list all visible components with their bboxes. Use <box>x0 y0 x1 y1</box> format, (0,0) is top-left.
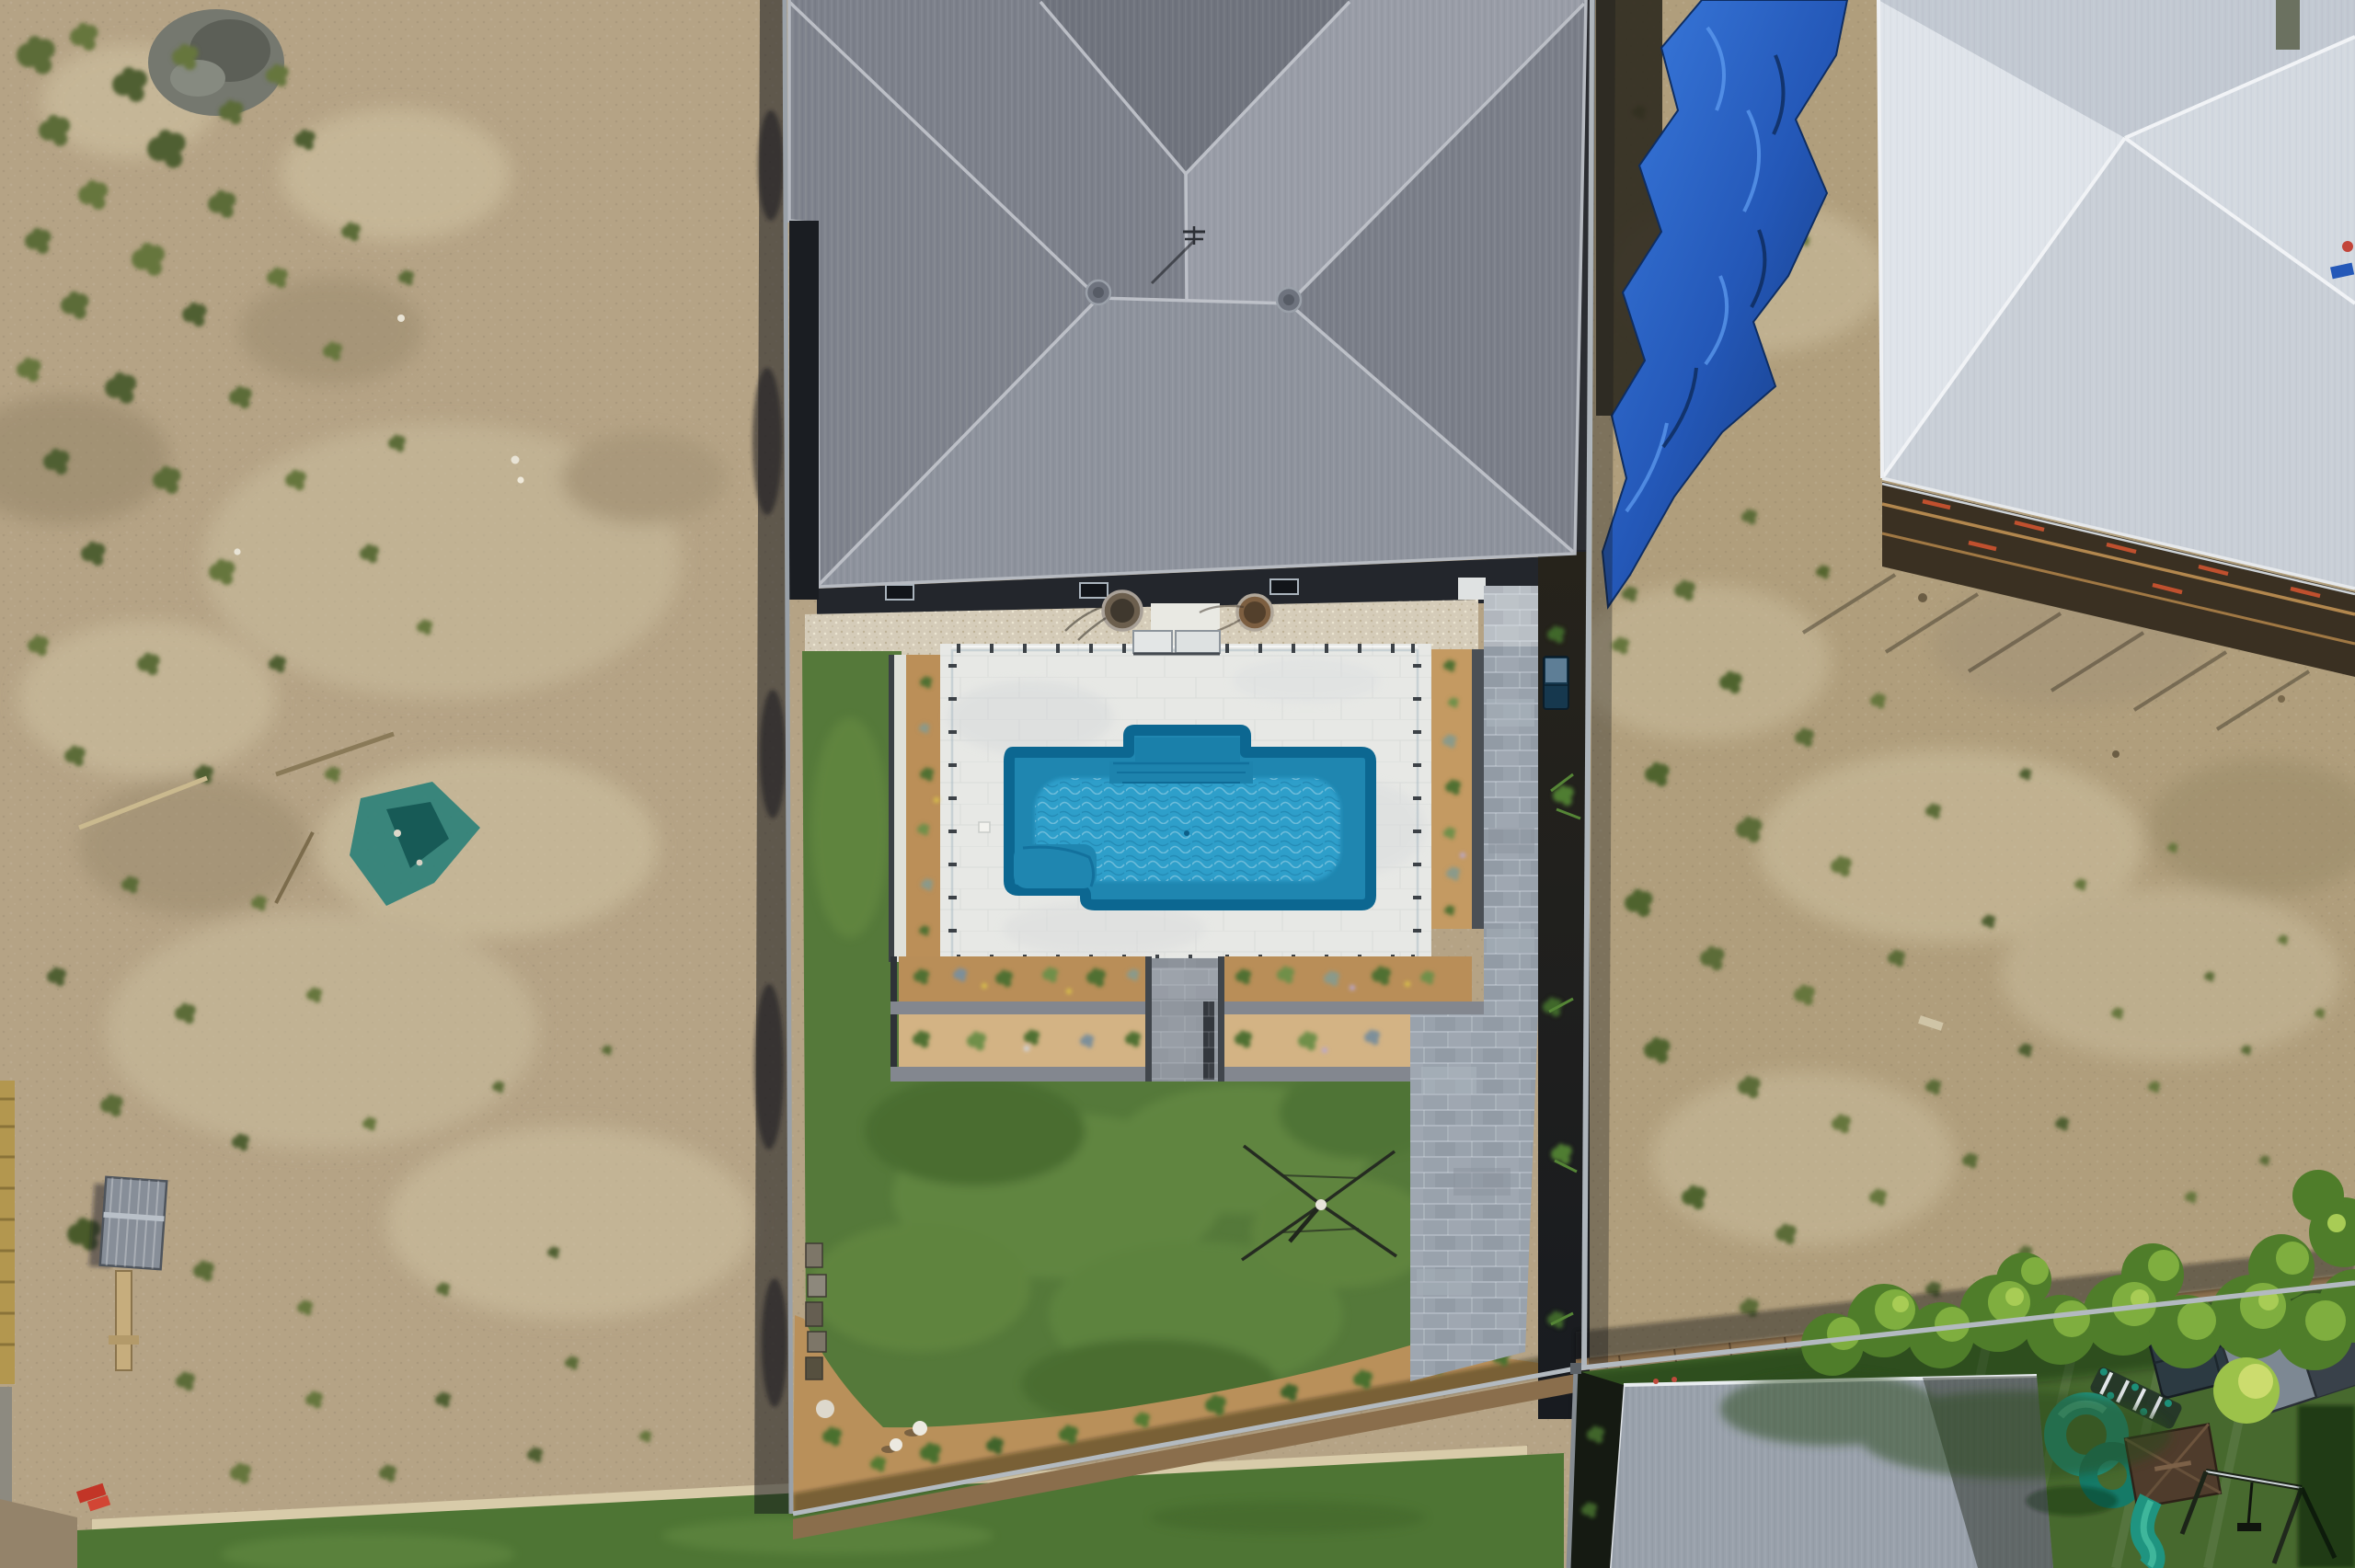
rubble-patch <box>148 9 284 116</box>
corrugated-sheet-table <box>89 1176 167 1271</box>
red-marker <box>2342 241 2353 252</box>
central-steps-path <box>1152 958 1218 1082</box>
pool-drain <box>1184 830 1189 836</box>
bed-row1-left <box>899 956 1145 1001</box>
bed-row1-right <box>1224 956 1472 1001</box>
deep-shade-corner <box>2298 1405 2355 1568</box>
fence-junction-post <box>1570 1363 1581 1374</box>
main-house-roof <box>789 0 1586 587</box>
pool-area <box>889 631 1484 966</box>
bed-row2-left <box>899 1014 1145 1067</box>
bed-edging-left-outer <box>889 655 894 962</box>
aerial-photo-canvas <box>0 0 2355 1568</box>
side-passage-shadow <box>789 221 819 600</box>
lower-garden-beds <box>890 956 1484 1082</box>
white-strip-left <box>894 655 906 962</box>
wall-corner-lintel <box>1458 578 1486 600</box>
pool-gate <box>1133 631 1220 654</box>
bed-edging-right <box>1472 649 1484 929</box>
aerial-photo <box>0 0 2355 1568</box>
pool-swimout-step <box>1014 844 1097 888</box>
roof-notch <box>2276 0 2300 50</box>
pool <box>979 730 1371 905</box>
ac-unit <box>1544 657 1568 709</box>
skimmer-lid <box>979 822 990 832</box>
